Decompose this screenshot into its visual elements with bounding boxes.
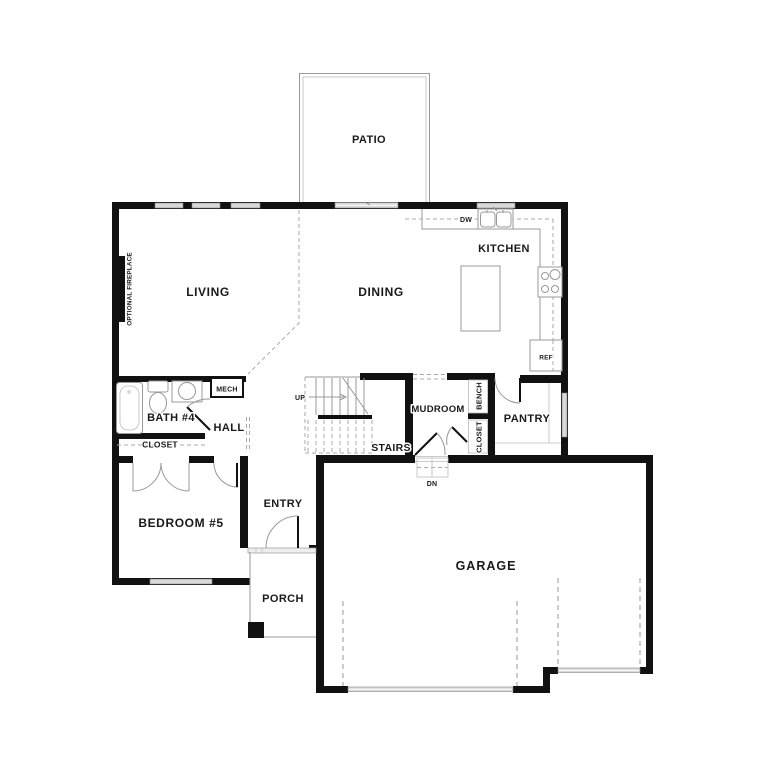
garage-entry-steps — [417, 458, 448, 477]
kitchen-fixtures — [405, 207, 562, 371]
label-closet-mudroom: CLOSET — [475, 421, 484, 453]
garage-door-side — [558, 668, 640, 673]
living-dining-divider — [248, 210, 299, 374]
window-living-3 — [231, 203, 260, 208]
label-stairs: STAIRS — [371, 442, 411, 454]
window-living-1 — [155, 203, 183, 208]
label-pantry: PANTRY — [504, 413, 551, 425]
window-kitchen-sink — [477, 203, 515, 208]
mudroom-closet-door — [447, 427, 467, 445]
toilet — [148, 381, 168, 414]
front-door — [248, 516, 316, 553]
label-mudroom: MUDROOM — [411, 404, 464, 415]
patio-sliding-door — [335, 203, 398, 209]
window-pantry — [562, 393, 567, 437]
label-dishwasher: DW — [460, 217, 472, 224]
porch-post — [248, 622, 264, 638]
kitchen-sink — [478, 207, 513, 229]
label-refrigerator: REF — [539, 355, 553, 362]
closet-double-doors — [133, 463, 189, 491]
bath-closet — [117, 445, 238, 491]
window-living-2 — [192, 203, 220, 208]
garage-door-main — [348, 687, 513, 692]
label-closet-bath: CLOSET — [142, 440, 178, 450]
label-living: LIVING — [186, 285, 230, 299]
pantry-graphic — [495, 378, 561, 443]
label-hall: HALL — [214, 422, 245, 434]
fireplace-bump — [112, 256, 125, 322]
hall-opening — [247, 417, 250, 450]
label-mech: MECH — [216, 387, 237, 394]
label-optional-fireplace: OPTIONAL FIREPLACE — [127, 252, 134, 325]
label-porch: PORCH — [262, 593, 304, 605]
mudroom-garage-door — [415, 433, 448, 462]
bedroom-door — [214, 463, 238, 487]
label-dining: DINING — [358, 285, 404, 299]
label-bath: BATH #4 — [147, 412, 195, 424]
label-garage: GARAGE — [456, 559, 517, 573]
garage-details — [343, 458, 640, 692]
bath-sink-vanity — [172, 381, 202, 402]
window-bedroom — [150, 579, 212, 584]
label-down: DN — [427, 481, 438, 488]
label-kitchen: KITCHEN — [478, 243, 530, 255]
label-patio: PATIO — [352, 134, 386, 146]
entry-porch — [248, 516, 316, 638]
kitchen-island — [461, 266, 500, 331]
label-entry: ENTRY — [264, 498, 303, 510]
floor-plan: PATIO LIVING DINING KITCHEN BATH #4 HALL… — [0, 0, 768, 768]
floor-plan-page: PATIO LIVING DINING KITCHEN BATH #4 HALL… — [0, 0, 768, 768]
cooktop — [538, 267, 562, 297]
bath-fixtures — [117, 381, 211, 434]
pantry-door — [495, 378, 520, 403]
label-bench: BENCH — [475, 382, 484, 410]
stairs-graphic — [305, 377, 372, 453]
label-up: UP — [295, 395, 305, 402]
label-bedroom: BEDROOM #5 — [138, 516, 223, 530]
